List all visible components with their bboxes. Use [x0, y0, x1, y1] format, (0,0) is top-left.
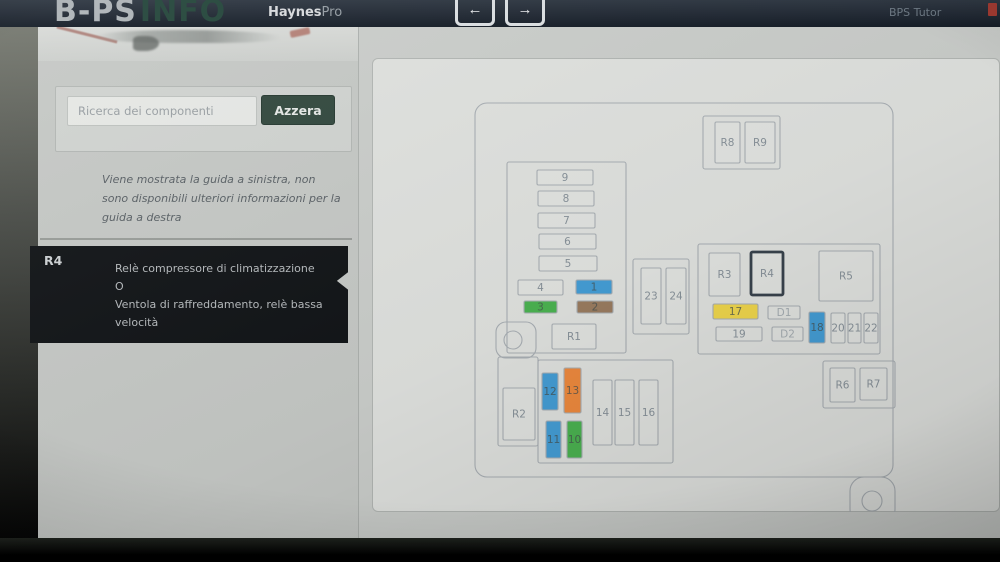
svg-text:24: 24: [669, 291, 683, 303]
svg-text:13: 13: [566, 385, 579, 397]
svg-text:14: 14: [596, 407, 610, 419]
description-line: Ventola di raffreddamento, relè bassa ve…: [115, 296, 351, 332]
fuse-24[interactable]: 24: [666, 268, 686, 324]
guide-notice-text: Viene mostrata la guida a sinistra, non …: [102, 170, 342, 227]
fuse-4[interactable]: 4: [518, 280, 563, 295]
svg-text:4: 4: [537, 282, 544, 294]
svg-text:1: 1: [591, 282, 598, 294]
svg-text:18: 18: [810, 322, 823, 334]
fuse-5[interactable]: 5: [539, 256, 597, 271]
svg-text:R9: R9: [753, 137, 767, 149]
mount-tab-bottom: [850, 477, 895, 512]
forward-button[interactable]: →: [505, 0, 545, 26]
diode-d2[interactable]: D2: [772, 327, 803, 341]
svg-text:R8: R8: [721, 137, 735, 149]
fuse-2[interactable]: 2: [577, 301, 613, 314]
fuse-10[interactable]: 10: [567, 421, 582, 458]
description-line: Relè compressore di climatizzazione: [115, 260, 351, 278]
fuse-17[interactable]: 17: [713, 304, 758, 319]
component-detail-panel: R4 Relè compressore di climatizzazione O…: [30, 246, 348, 343]
svg-text:9: 9: [562, 172, 569, 184]
fuse-21[interactable]: 21: [848, 313, 861, 343]
fuse-22[interactable]: 22: [864, 313, 878, 343]
relay-r7[interactable]: R7: [860, 368, 887, 400]
svg-text:R7: R7: [867, 379, 881, 391]
svg-text:5: 5: [565, 258, 572, 270]
back-arrow-icon: ←: [468, 1, 483, 18]
app-logo: B-PSINFO: [54, 0, 226, 27]
logo-info: INFO: [140, 0, 226, 27]
relay-r2[interactable]: R2: [503, 388, 535, 440]
svg-text:R4: R4: [760, 268, 774, 280]
svg-text:17: 17: [729, 306, 742, 318]
svg-text:R1: R1: [567, 331, 581, 343]
svg-text:R3: R3: [718, 269, 732, 281]
fuse-20[interactable]: 20: [831, 313, 845, 343]
svg-text:10: 10: [568, 434, 581, 446]
vehicle-image-accent2: [289, 27, 310, 38]
relay-r8[interactable]: R8: [715, 122, 740, 163]
relay-r9[interactable]: R9: [745, 122, 775, 163]
forward-arrow-icon: →: [518, 1, 533, 18]
fuse-15[interactable]: 15: [615, 380, 634, 445]
fuse-18[interactable]: 18: [809, 312, 825, 343]
component-code: R4: [44, 253, 62, 268]
svg-text:3: 3: [537, 302, 544, 314]
relay-r4[interactable]: R4: [751, 252, 783, 295]
svg-text:15: 15: [618, 407, 631, 419]
clear-button[interactable]: Azzera: [261, 95, 335, 125]
back-button[interactable]: ←: [455, 0, 495, 26]
fuse-12[interactable]: 12: [542, 373, 558, 410]
fuse-7[interactable]: 7: [538, 213, 595, 228]
svg-text:R2: R2: [512, 409, 526, 421]
relay-r6[interactable]: R6: [830, 368, 855, 402]
svg-text:2: 2: [592, 302, 599, 314]
fuse-11[interactable]: 11: [546, 421, 561, 458]
svg-text:D2: D2: [780, 329, 795, 341]
svg-text:23: 23: [644, 291, 657, 303]
svg-text:11: 11: [547, 434, 560, 446]
svg-text:D1: D1: [777, 307, 792, 319]
svg-text:7: 7: [563, 215, 570, 227]
fuse-1[interactable]: 1: [576, 280, 612, 294]
top-navbar: B-PSINFO HaynesPro ← → BPS Tutor: [0, 0, 1000, 27]
fuse-8[interactable]: 8: [538, 191, 594, 206]
mount-tab-bottom-hole: [862, 491, 882, 511]
fusebox-diagram: R8R9987654132R12324R3R4R517D119D21820212…: [370, 58, 998, 512]
svg-text:12: 12: [543, 386, 556, 398]
app-red-icon: [988, 3, 997, 16]
logo-bps: B-PS: [54, 0, 137, 27]
fuse-13[interactable]: 13: [564, 368, 581, 413]
vehicle-silhouette-detail: [133, 36, 159, 51]
svg-text:19: 19: [732, 329, 745, 341]
search-input[interactable]: [67, 96, 257, 126]
relay-r1[interactable]: R1: [552, 324, 596, 349]
bps-tutor-link[interactable]: BPS Tutor: [889, 6, 941, 19]
sidebar-divider: [40, 238, 352, 240]
relay-r5[interactable]: R5: [819, 251, 873, 301]
vehicle-image: [38, 27, 358, 61]
relay-r3[interactable]: R3: [709, 253, 740, 296]
component-description: Relè compressore di climatizzazione O Ve…: [115, 260, 351, 332]
screen-photo: B-PSINFO HaynesPro ← → BPS Tutor Azzera …: [0, 0, 1000, 562]
fuse-6[interactable]: 6: [539, 234, 596, 249]
svg-text:6: 6: [564, 236, 571, 248]
fuse-14[interactable]: 14: [593, 380, 612, 445]
component-search-card: Azzera: [55, 86, 352, 152]
svg-text:R6: R6: [836, 380, 850, 392]
photo-bottom-edge: [0, 538, 1000, 562]
vehicle-silhouette: [96, 30, 281, 43]
haynespro-brand: HaynesPro: [268, 5, 342, 20]
fuse-16[interactable]: 16: [639, 380, 658, 445]
fuse-23[interactable]: 23: [641, 268, 661, 324]
description-line: O: [115, 278, 351, 296]
svg-text:20: 20: [831, 323, 844, 335]
fuse-3[interactable]: 3: [524, 301, 557, 314]
svg-text:21: 21: [848, 323, 861, 335]
svg-text:16: 16: [642, 407, 656, 419]
svg-text:8: 8: [563, 193, 570, 205]
svg-text:R5: R5: [839, 271, 853, 283]
fuse-19[interactable]: 19: [716, 327, 762, 341]
diode-d1[interactable]: D1: [768, 306, 800, 319]
svg-text:22: 22: [864, 323, 877, 335]
fuse-9[interactable]: 9: [537, 170, 593, 185]
